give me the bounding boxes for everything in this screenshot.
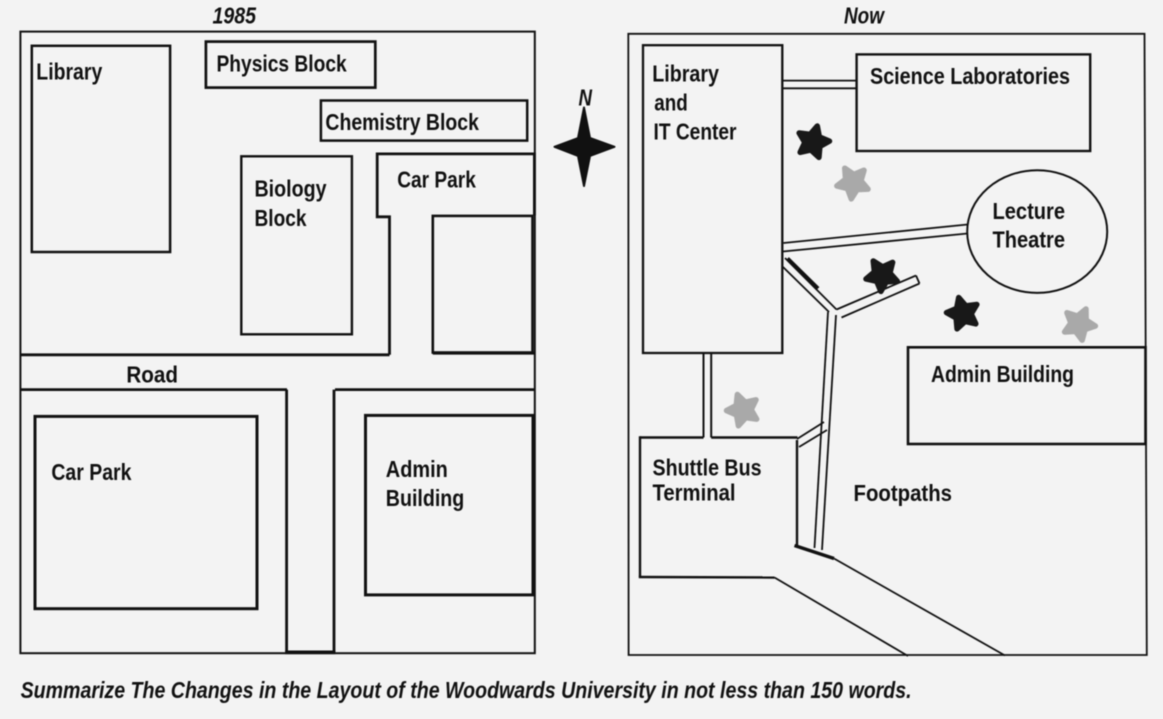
- svg-text:Theatre: Theatre: [993, 227, 1066, 253]
- svg-text:Shuttle Bus: Shuttle Bus: [653, 454, 762, 480]
- svg-text:Chemistry Block: Chemistry Block: [325, 109, 479, 135]
- svg-text:Library: Library: [36, 59, 102, 85]
- svg-text:Biology: Biology: [255, 176, 327, 202]
- svg-text:Lecture: Lecture: [993, 198, 1066, 224]
- svg-text:Footpaths: Footpaths: [854, 480, 953, 506]
- svg-text:Terminal: Terminal: [653, 480, 736, 506]
- svg-text:Block: Block: [255, 205, 307, 231]
- svg-text:Road: Road: [126, 361, 178, 387]
- svg-text:Physics Block: Physics Block: [217, 50, 347, 76]
- svg-text:IT Center: IT Center: [654, 118, 737, 144]
- svg-text:Car Park: Car Park: [397, 167, 476, 193]
- svg-text:Admin Building: Admin Building: [931, 361, 1074, 387]
- svg-text:and: and: [654, 90, 688, 116]
- svg-text:Science Laboratories: Science Laboratories: [870, 63, 1070, 89]
- svg-text:Now: Now: [844, 3, 886, 29]
- svg-text:Library: Library: [652, 61, 719, 87]
- svg-text:1985: 1985: [213, 3, 258, 29]
- svg-text:Building: Building: [386, 485, 465, 511]
- svg-text:Car Park: Car Park: [51, 459, 131, 485]
- svg-text:Summarize The Changes in the L: Summarize The Changes in the Layout of t…: [21, 677, 912, 703]
- svg-text:Admin: Admin: [386, 456, 448, 482]
- svg-text:N: N: [579, 85, 593, 111]
